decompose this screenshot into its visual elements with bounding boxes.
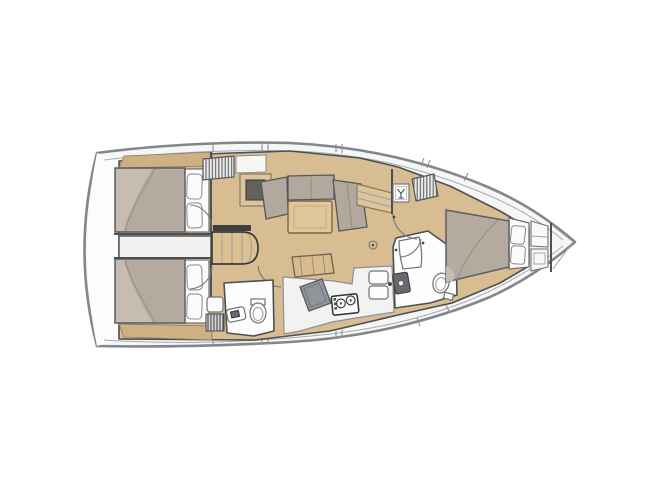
stove-knob [334,307,337,310]
aft-cabin-port [115,152,212,234]
door-stop-dot [422,242,425,245]
companionway-threshold [213,225,251,231]
washbasin [392,272,410,294]
faucet [388,282,392,286]
glass-locker [393,184,409,202]
toilet [250,299,266,323]
yacht-floor-plan [0,0,657,492]
washbasin-bowl [230,310,239,318]
sink-basin [369,271,388,284]
table-leg-mount-dot [372,244,375,247]
pillow [187,174,203,200]
cabin-seat [207,297,223,312]
pillow [187,294,203,320]
settee-cushion-left [261,177,288,219]
hanging-locker-louvered [412,174,438,201]
floor-plan-svg [0,0,657,492]
door-stop-dot [395,249,398,252]
pillow [510,246,525,265]
overhead-cabinet [236,155,266,173]
stove [331,294,359,316]
bow-locker-upper [531,221,548,247]
stove-knob [333,298,336,301]
toilet-cistern [443,292,453,300]
bow-locker-lower [531,249,548,271]
shower-seat [399,237,422,269]
louvered-locker [203,156,234,180]
aft-cabin-starboard [115,258,224,340]
aft-head-room [224,280,274,336]
shower-grate [206,314,224,331]
door-stop-dot [393,216,396,219]
stove-knob [334,302,337,305]
aft-head [224,280,274,336]
pillow [187,203,203,229]
pillow [510,225,526,244]
sink-basin [369,286,388,299]
floor-trim-wedge [119,324,212,340]
